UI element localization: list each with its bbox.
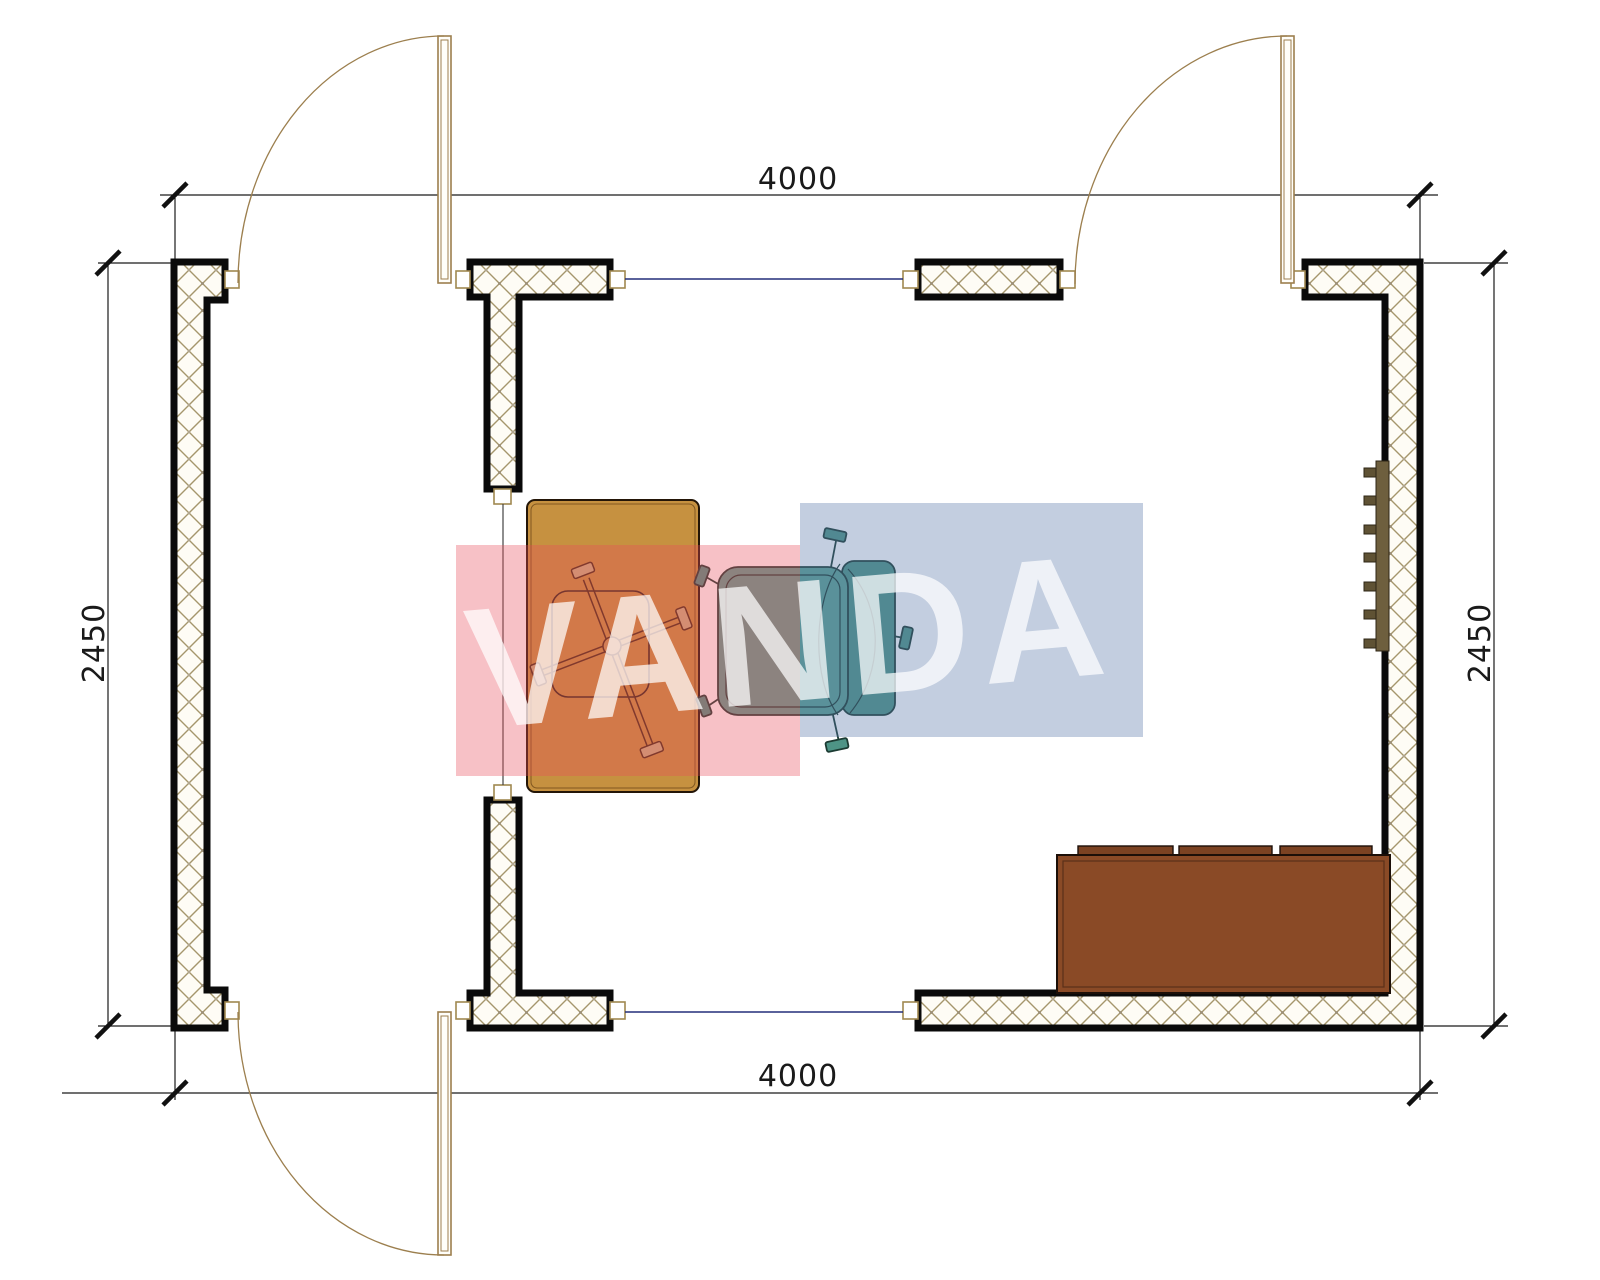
radiator-fin — [1364, 553, 1376, 562]
wall-bottom-left — [470, 800, 610, 1028]
radiator-fin — [1364, 582, 1376, 591]
radiator-fin — [1364, 525, 1376, 534]
floor-plan-svg: 4000 4000 2450 2450 — [0, 0, 1600, 1280]
sofa-body — [1057, 855, 1390, 993]
sofa — [1057, 846, 1390, 993]
wall-top-left — [470, 262, 610, 489]
door-top-left — [238, 36, 451, 283]
door-swing-arc — [238, 36, 444, 283]
dim-label-left: 2450 — [77, 603, 112, 683]
door-swing-arc — [1075, 36, 1287, 284]
dim-label-bottom: 4000 — [758, 1059, 838, 1094]
door-swing-arc — [238, 1012, 444, 1255]
radiator-bar — [1376, 461, 1389, 651]
dim-label-top: 4000 — [758, 162, 838, 197]
radiator-fin — [1364, 496, 1376, 505]
radiator-fin — [1364, 610, 1376, 619]
door-bottom-left — [238, 1012, 451, 1255]
door-top-right — [1075, 36, 1294, 284]
floor-plan-canvas: 4000 4000 2450 2450 — [0, 0, 1600, 1280]
radiator-fin — [1364, 468, 1376, 477]
radiator — [1364, 461, 1389, 651]
dim-label-right: 2450 — [1463, 603, 1498, 683]
wall-left — [174, 262, 225, 1028]
wall-top-middle — [918, 262, 1060, 297]
radiator-fin — [1364, 639, 1376, 648]
